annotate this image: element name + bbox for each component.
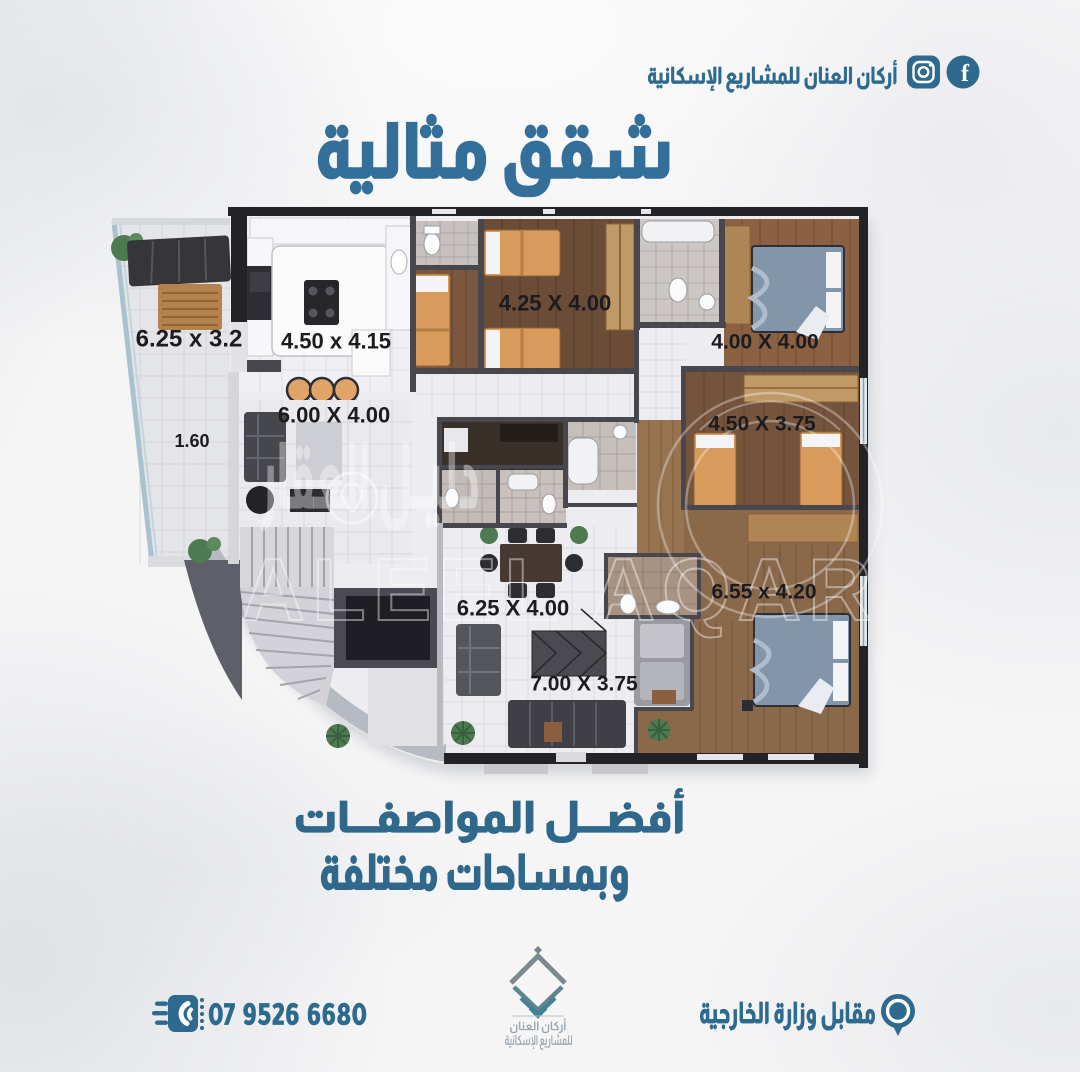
svg-text:6.25 x 3.2: 6.25 x 3.2 bbox=[136, 326, 243, 353]
svg-text:6.00 X 4.00: 6.00 X 4.00 bbox=[278, 403, 391, 428]
svg-text:4.50 X 3.75: 4.50 X 3.75 bbox=[708, 413, 816, 436]
svg-text:7.00 X 3.75: 7.00 X 3.75 bbox=[530, 673, 638, 696]
svg-text:4.25 X 4.00: 4.25 X 4.00 bbox=[499, 291, 612, 316]
svg-text:1.60: 1.60 bbox=[174, 431, 209, 451]
svg-text:f: f bbox=[961, 61, 970, 87]
svg-text:4.00 X 4.00: 4.00 X 4.00 bbox=[711, 331, 818, 354]
svg-text:6.55 x 4.20: 6.55 x 4.20 bbox=[711, 581, 816, 604]
svg-text:4.50 x 4.15: 4.50 x 4.15 bbox=[281, 329, 391, 354]
svg-text:6.25 X 4.00: 6.25 X 4.00 bbox=[457, 596, 570, 621]
